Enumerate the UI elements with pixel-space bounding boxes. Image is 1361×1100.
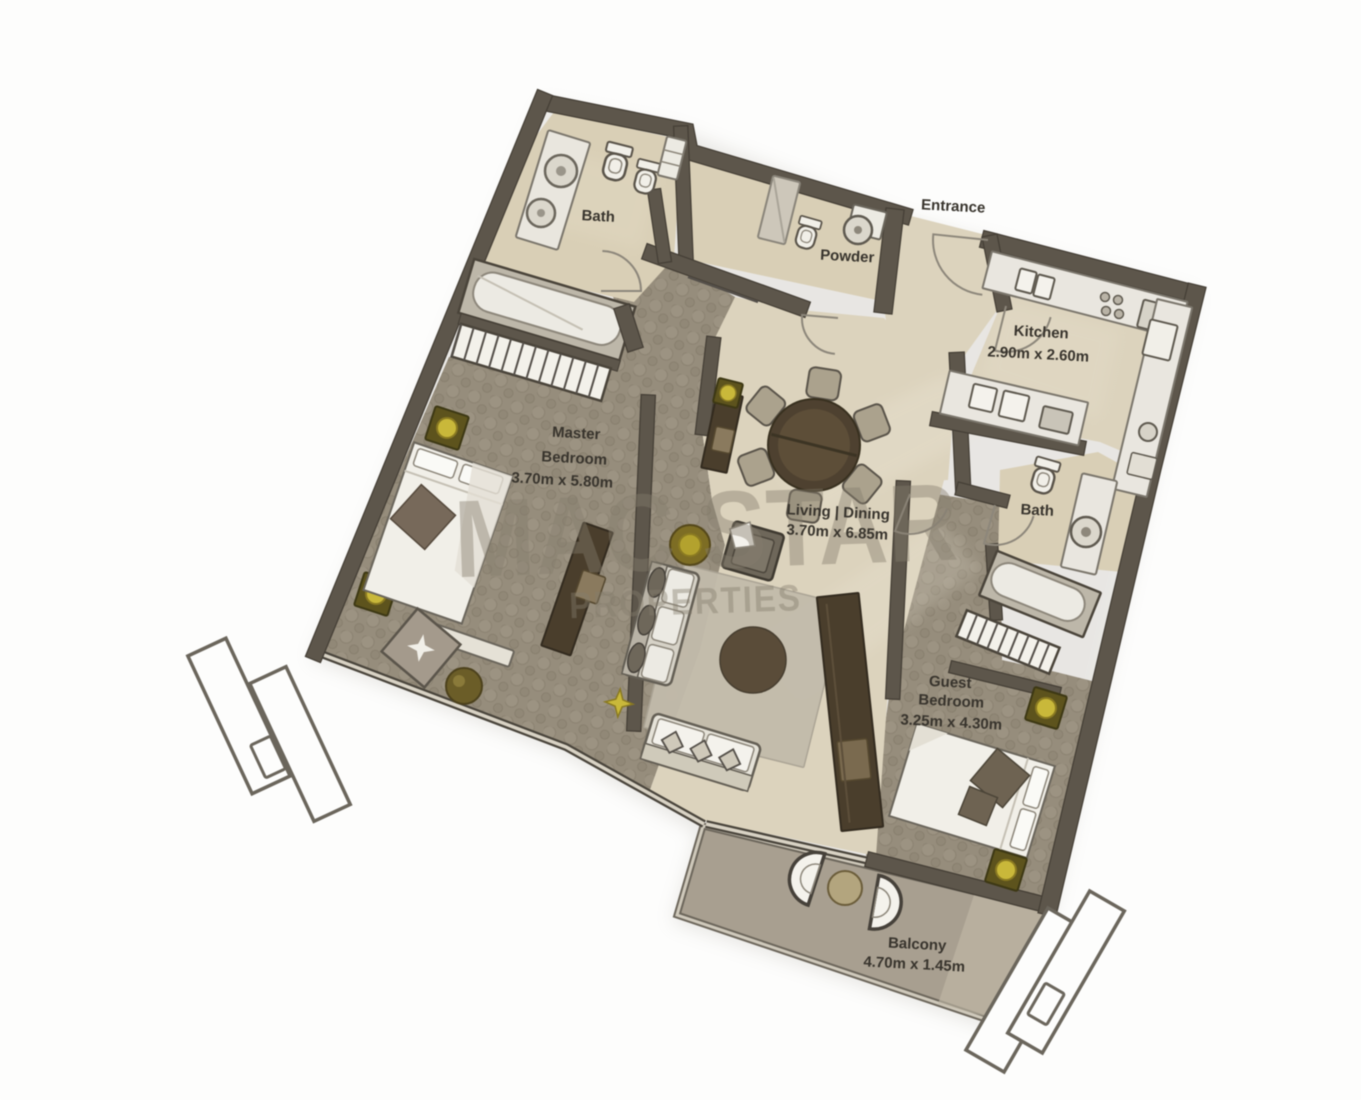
svg-text:Bedroom: Bedroom — [918, 691, 985, 711]
svg-text:Master: Master — [552, 424, 601, 444]
svg-text:PROPERTIES: PROPERTIES — [569, 578, 803, 627]
svg-text:Guest: Guest — [929, 673, 972, 692]
svg-text:Bath: Bath — [581, 207, 615, 226]
svg-text:Balcony: Balcony — [888, 934, 948, 954]
svg-text:Entrance: Entrance — [921, 196, 986, 216]
svg-text:Powder: Powder — [820, 247, 875, 267]
svg-text:Kitchen: Kitchen — [1013, 323, 1069, 343]
svg-text:Bedroom: Bedroom — [541, 448, 608, 468]
svg-text:Bath: Bath — [1020, 501, 1054, 520]
